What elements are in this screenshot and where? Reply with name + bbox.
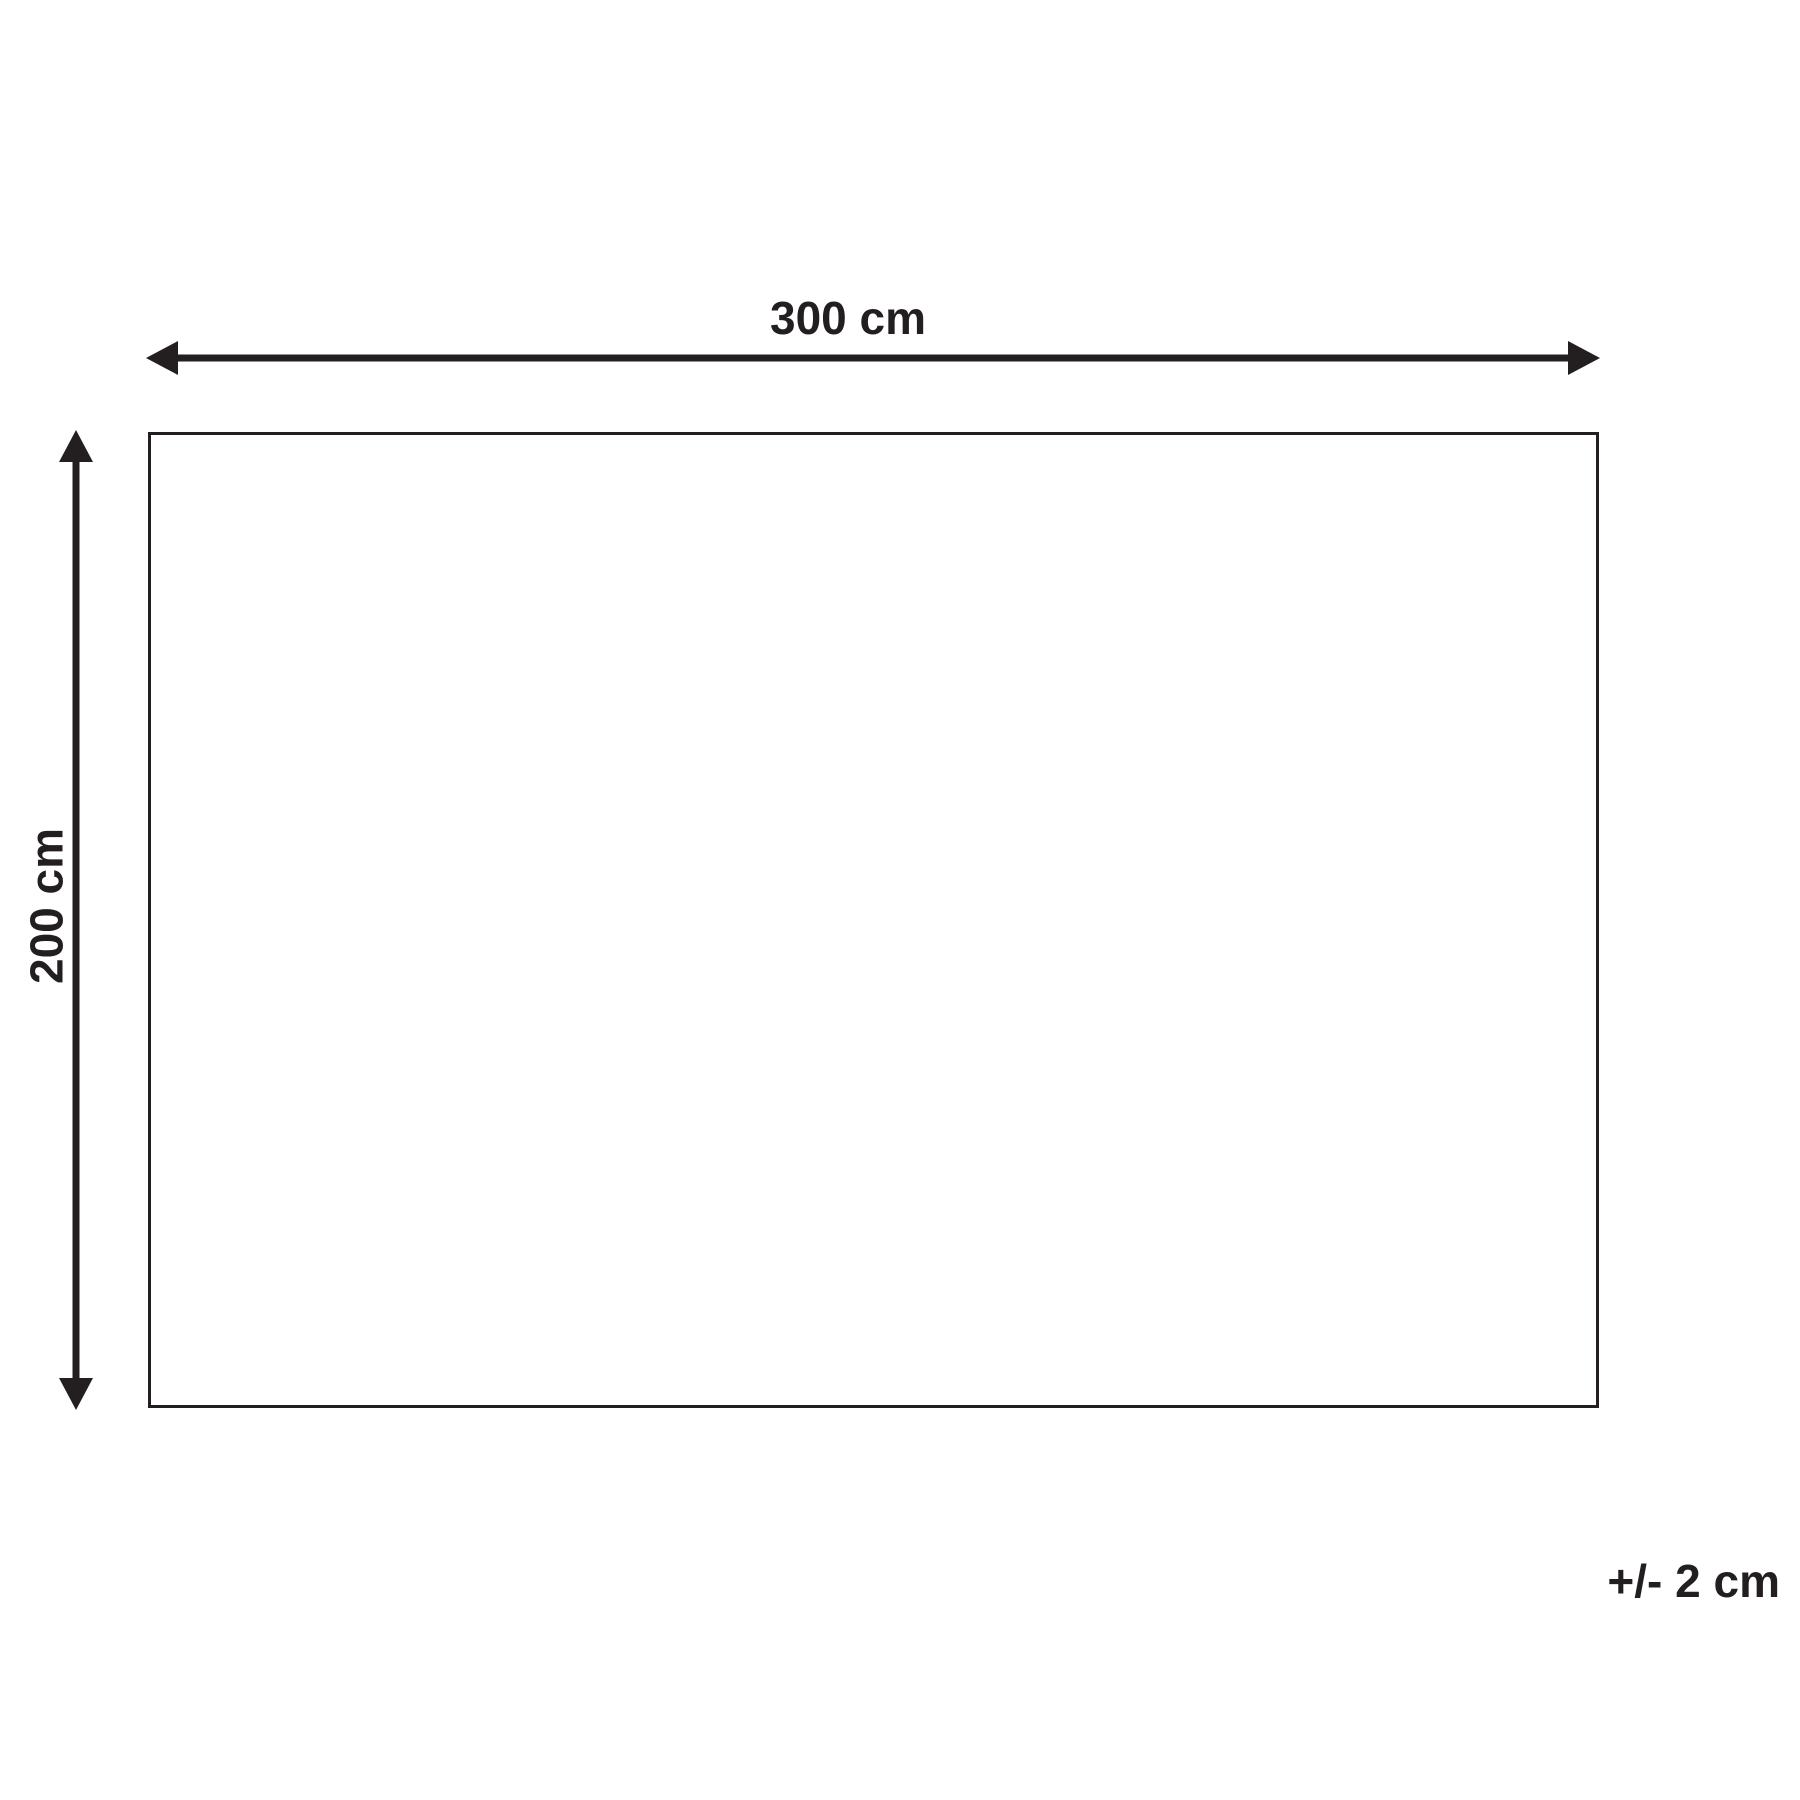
width-dimension-arrow-icon [146,341,1600,375]
dimension-diagram: 300 cm 200 cm +/- 2 cm [0,0,1800,1800]
tolerance-label: +/- 2 cm [1607,1556,1780,1607]
width-dimension-label: 300 cm [770,293,926,344]
product-outline [148,432,1599,1408]
height-dimension-label: 200 cm [22,828,73,984]
